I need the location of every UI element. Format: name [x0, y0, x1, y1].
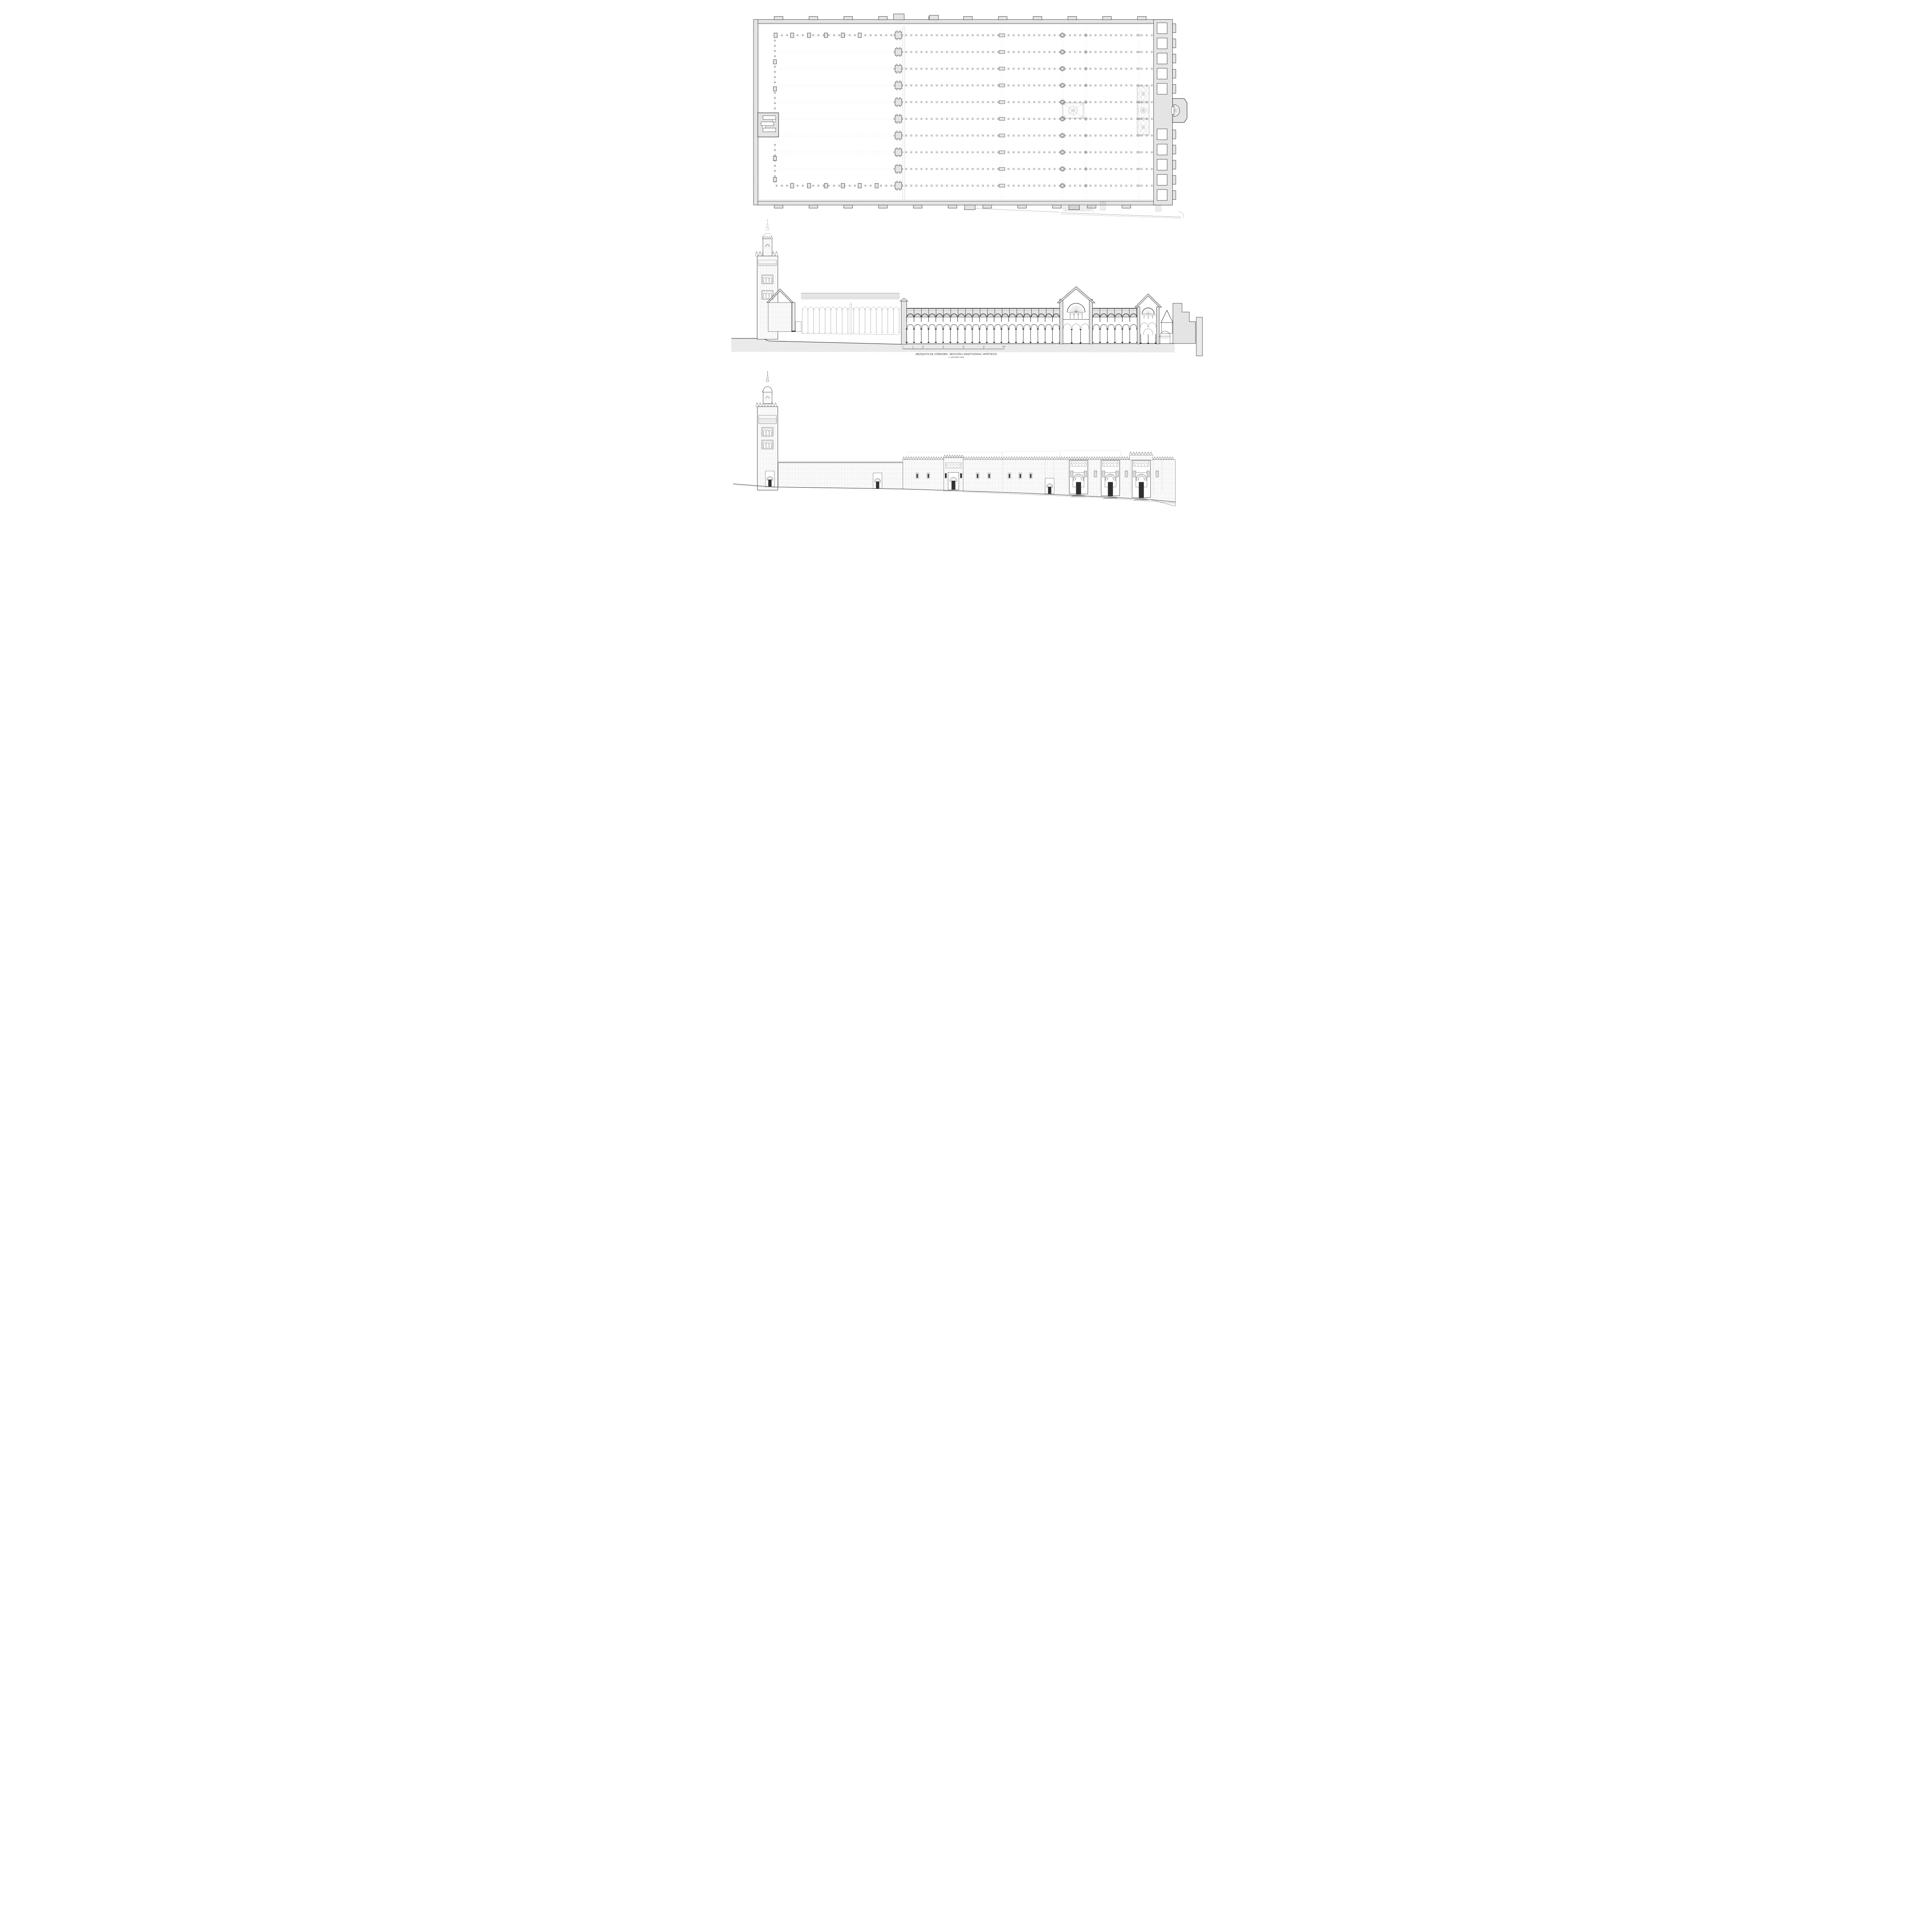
cross-pier: [894, 131, 903, 140]
octofoil-pier: [1060, 150, 1065, 155]
slit-window: [916, 473, 918, 478]
octofoil-pier: [1060, 183, 1065, 189]
octofoil-pier: [1060, 49, 1065, 55]
scale-tick-label: 30: [963, 345, 964, 347]
slit-window: [976, 473, 979, 478]
slit-window: [988, 473, 991, 478]
cross-pier: [894, 114, 903, 124]
scale-tick-label: 10: [922, 345, 924, 347]
ornate-portal: [1130, 452, 1153, 501]
scale-tick-label: 20: [942, 345, 944, 347]
cross-pier: [894, 48, 903, 57]
simple-gate: [1045, 478, 1054, 494]
scale-tick-label: 40: [983, 345, 985, 347]
slit-window: [1008, 473, 1011, 478]
slit-window: [1029, 473, 1032, 478]
octofoil-pier: [1060, 66, 1065, 71]
simple-gate: [765, 471, 774, 487]
minaret-plan: [758, 113, 779, 137]
cross-pier: [894, 148, 903, 157]
simple-gate: [873, 473, 882, 489]
cross-pier: [894, 97, 903, 107]
courtyard-wall: [778, 461, 903, 489]
paper: [724, 0, 1207, 512]
cross-pier: [894, 64, 903, 73]
octofoil-pier: [1060, 33, 1065, 38]
slit-window: [927, 473, 930, 478]
cross-pier: [894, 164, 903, 173]
scale-tick-label: 50 m: [1002, 345, 1006, 347]
octofoil-pier: [1060, 83, 1065, 88]
octofoil-pier: [1060, 133, 1065, 138]
cross-pier: [894, 31, 903, 40]
ornate-portal: [1101, 460, 1120, 499]
puerta-san-esteban: [944, 455, 963, 491]
slit-window: [1019, 473, 1022, 478]
cross-pier: [894, 81, 903, 90]
ornate-portal: [1070, 460, 1088, 497]
cross-pier: [894, 181, 903, 190]
caption-author: A. ALMAGRO /ARQ.: [949, 356, 964, 358]
drawing-sheet: 051020304050 m MEZQUITA DE CÓRDOBA. SECC…: [724, 0, 1207, 512]
mezquita-drawing: 051020304050 m MEZQUITA DE CÓRDOBA. SECC…: [724, 0, 1207, 512]
octofoil-pier: [1060, 167, 1065, 172]
